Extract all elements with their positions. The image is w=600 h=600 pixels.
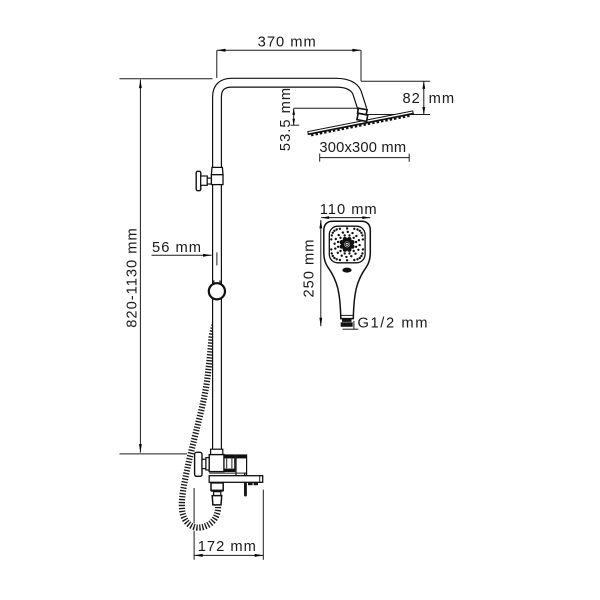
- svg-text:mm: mm: [429, 91, 455, 107]
- svg-text:172 mm: 172 mm: [198, 539, 257, 555]
- svg-text:820-1130 mm: 820-1130 mm: [124, 227, 140, 328]
- svg-text:370 mm: 370 mm: [258, 34, 317, 50]
- svg-text:250 mm: 250 mm: [301, 238, 317, 297]
- svg-text:110 mm: 110 mm: [320, 202, 378, 218]
- svg-text:53.5 mm: 53.5 mm: [278, 87, 294, 151]
- svg-text:82: 82: [402, 91, 420, 107]
- svg-text:56 mm: 56 mm: [152, 240, 202, 256]
- svg-text:300x300 mm: 300x300 mm: [319, 140, 406, 156]
- svg-text:G1/2 mm: G1/2 mm: [358, 316, 430, 332]
